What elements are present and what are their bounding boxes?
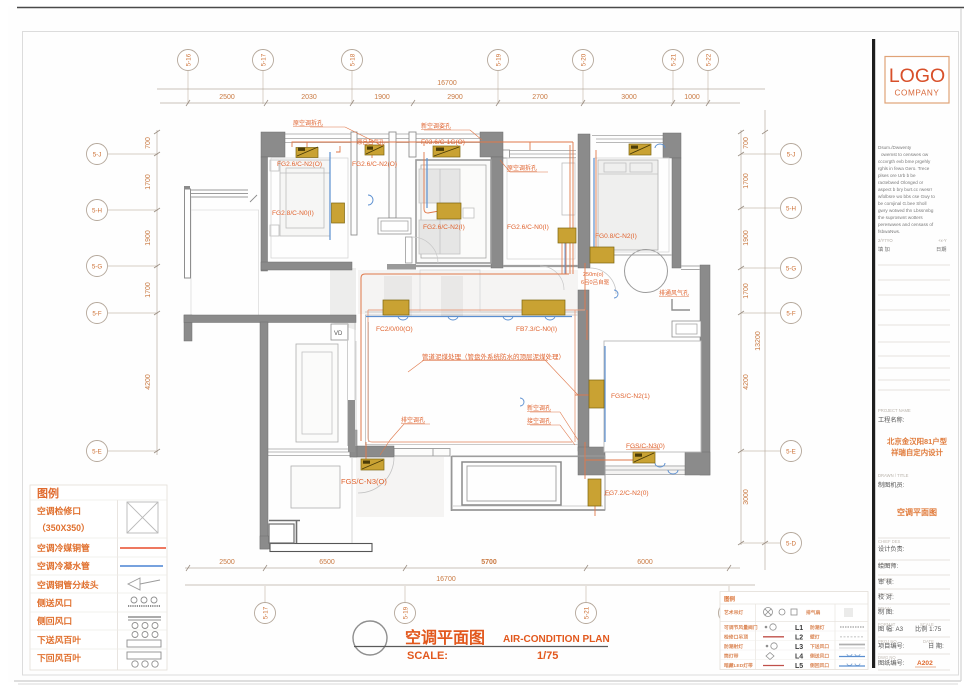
svg-text:防潮灯: 防潮灯 [810, 624, 825, 631]
svg-text:FC2/0/00(O): FC2/0/00(O) [376, 326, 413, 333]
svg-text:fsbwaNws.: fsbwaNws. [878, 229, 900, 234]
svg-text:5-19: 5-19 [403, 606, 410, 619]
svg-text:FG7.2/C-N2(0): FG7.2/C-N2(0) [605, 490, 649, 497]
svg-text:5-G: 5-G [786, 266, 797, 273]
svg-text:FG2.6/C-N2(O): FG2.6/C-N2(O) [277, 161, 322, 168]
svg-text:1700: 1700 [743, 283, 750, 299]
svg-text:Dsum./Dwwenty: Dsum./Dwwenty [878, 145, 912, 150]
svg-text:比例 1:75: 比例 1:75 [915, 625, 942, 633]
svg-text:3000: 3000 [621, 94, 637, 101]
svg-text:下回风百叶: 下回风百叶 [37, 652, 81, 663]
svg-text:原吕吕气孔: 原吕吕气孔 [357, 138, 385, 146]
svg-text:图例: 图例 [37, 486, 59, 500]
svg-text:5-J: 5-J [787, 152, 796, 159]
svg-text:cccvrgth evb bme prgehly: cccvrgth evb bme prgehly [878, 159, 931, 164]
svg-text:（350X350）: （350X350） [37, 523, 90, 533]
svg-text:设计负责:: 设计负责: [878, 545, 905, 553]
svg-text:新空调姿孔: 新空调姿孔 [421, 122, 451, 130]
svg-text:填 加: 填 加 [878, 245, 890, 253]
svg-text:接空调孔: 接空调孔 [527, 417, 551, 425]
svg-text:北京金汉阳81户型: 北京金汉阳81户型 [887, 437, 948, 446]
svg-text:1700: 1700 [145, 282, 152, 298]
svg-text:防潮射灯: 防潮射灯 [724, 643, 743, 650]
svg-text:绘图师:: 绘图师: [878, 562, 899, 570]
svg-text:4200: 4200 [145, 374, 152, 390]
svg-text:审 核:: 审 核: [878, 578, 894, 586]
svg-text:5-E: 5-E [786, 449, 796, 456]
svg-text:L4: L4 [795, 654, 803, 661]
svg-text:2900: 2900 [447, 94, 463, 101]
svg-text:DRAWN / TITLE: DRAWN / TITLE [878, 473, 909, 478]
svg-text:5-22: 5-22 [706, 53, 713, 66]
svg-text:F03.6/C-1G(O): F03.6/C-1G(O) [421, 139, 465, 146]
svg-text:VD: VD [334, 331, 343, 337]
svg-text:排气扇: 排气扇 [806, 609, 821, 616]
svg-text:5-17: 5-17 [261, 53, 268, 66]
svg-text:L1: L1 [795, 625, 803, 632]
svg-text:1900: 1900 [374, 94, 390, 101]
svg-text:5-21: 5-21 [584, 606, 591, 619]
svg-text:工程名称:: 工程名称: [878, 416, 905, 424]
svg-text:管道泥煤处理（管盘外系统防水的顶层泥煤处理）: 管道泥煤处理（管盘外系统防水的顶层泥煤处理） [422, 352, 565, 361]
svg-text:可调节风量阀门: 可调节风量阀门 [724, 624, 758, 631]
svg-text:5-19: 5-19 [496, 53, 503, 66]
svg-text:侧送风口: 侧送风口 [37, 597, 72, 608]
svg-text:图例: 图例 [724, 595, 736, 603]
svg-text:ractebwed Olonged or: ractebwed Olonged or [878, 180, 924, 185]
svg-text:5-20: 5-20 [581, 53, 588, 66]
svg-text:5-H: 5-H [786, 206, 796, 213]
svg-text:plses ore Urb b be: plses ore Urb b be [878, 173, 916, 178]
svg-text:1/75: 1/75 [537, 650, 558, 662]
svg-text:空调冷凝水管: 空调冷凝水管 [37, 560, 90, 571]
svg-text:6000: 6000 [637, 559, 653, 566]
svg-text:5-D: 5-D [786, 541, 797, 548]
svg-text:5-E: 5-E [92, 449, 102, 456]
svg-text:项目编号:: 项目编号: [878, 642, 905, 650]
svg-text:FG2.6/C-N0(I): FG2.6/C-N0(I) [507, 224, 549, 231]
svg-text:筒灯带: 筒灯带 [724, 653, 739, 660]
svg-text:L3: L3 [795, 644, 803, 651]
svg-text:空调冷媒铜管: 空调冷媒铜管 [37, 542, 90, 553]
svg-text:2030: 2030 [301, 94, 317, 101]
svg-text:5-H: 5-H [92, 208, 102, 215]
svg-text:1900: 1900 [145, 230, 152, 246]
svg-text:L2: L2 [795, 635, 803, 642]
svg-text:5-F: 5-F [92, 311, 102, 318]
svg-text:wfolbsre wo bbs cse Gwy to: wfolbsre wo bbs cse Gwy to [878, 194, 935, 199]
svg-text:1000: 1000 [684, 94, 700, 101]
svg-text:侧送风口: 侧送风口 [810, 653, 829, 660]
svg-text:5-J: 5-J [93, 152, 102, 159]
svg-text:FG0.8/C-N2(I): FG0.8/C-N2(I) [595, 233, 637, 240]
svg-text:+x-Y: +x-Y [938, 238, 947, 243]
svg-text:下送风口: 下送风口 [810, 643, 829, 650]
svg-text:3000: 3000 [743, 489, 750, 505]
svg-text:新空调孔: 新空调孔 [527, 404, 551, 412]
svg-text:空调铜管分歧头: 空调铜管分歧头 [37, 579, 99, 590]
svg-text:gwry wotwed thn Lbssnnbg: gwry wotwed thn Lbssnnbg [878, 208, 934, 213]
svg-text:aspect b bry burt.cc rwesrr: aspect b bry burt.cc rwesrr [878, 187, 933, 192]
svg-text:4200: 4200 [743, 374, 750, 390]
svg-text:排空调孔: 排空调孔 [401, 416, 425, 424]
svg-text:CHIEF DES: CHIEF DES [878, 539, 901, 544]
svg-text:L5: L5 [795, 663, 803, 670]
svg-text:暗藏LED灯带: 暗藏LED灯带 [724, 662, 753, 669]
svg-text:制 图:: 制 图: [878, 608, 894, 616]
svg-text:FG2.8/C-N0(I): FG2.8/C-N0(I) [272, 210, 314, 217]
svg-text:13200: 13200 [755, 331, 762, 351]
svg-text:FB7.3/C-N0(I): FB7.3/C-N0(I) [516, 326, 557, 333]
svg-text:艺术吊灯: 艺术吊灯 [724, 609, 743, 616]
svg-text:侧回风口: 侧回风口 [810, 662, 829, 669]
svg-text:5-16: 5-16 [186, 53, 193, 66]
svg-text:5700: 5700 [481, 559, 497, 566]
svg-text:空调平面图: 空调平面图 [897, 507, 937, 517]
svg-text:日期: 日期 [936, 246, 946, 253]
svg-text:250m(o): 250m(o) [583, 272, 604, 278]
svg-text:be comjinal G.bee Sholl: be comjinal G.bee Sholl [878, 201, 927, 206]
svg-text:16700: 16700 [437, 80, 457, 87]
svg-text:图纸编号:: 图纸编号: [878, 659, 905, 667]
svg-text:5-17: 5-17 [263, 606, 270, 619]
svg-text:2500: 2500 [219, 559, 235, 566]
svg-text:6吕0吕自驱: 6吕0吕自驱 [581, 278, 610, 286]
svg-text:日 期:: 日 期: [928, 642, 944, 650]
svg-text:2700: 2700 [532, 94, 548, 101]
svg-text:700: 700 [743, 137, 750, 149]
svg-text:FGS/C-N3(O): FGS/C-N3(O) [341, 477, 387, 486]
svg-text:PROJECT NAME: PROJECT NAME [878, 408, 911, 413]
svg-text:空调平面图: 空调平面图 [405, 628, 485, 647]
svg-text:2500: 2500 [219, 94, 235, 101]
svg-text:5-G: 5-G [92, 264, 103, 271]
svg-text:制图机员:: 制图机员: [878, 481, 905, 489]
svg-text:16700: 16700 [436, 576, 456, 583]
svg-text:FGS/C-N3(0): FGS/C-N3(0) [626, 443, 665, 450]
svg-text:FG2.6/C-N2(I): FG2.6/C-N2(I) [423, 224, 465, 231]
svg-text:5-F: 5-F [786, 311, 796, 318]
svg-text:LOGO: LOGO [889, 65, 945, 87]
svg-text:6500: 6500 [319, 559, 335, 566]
svg-text:pereswwes and censass of: pereswwes and censass of [878, 222, 934, 227]
svg-text:A202: A202 [917, 660, 933, 667]
svg-text:COMPANY: COMPANY [895, 89, 940, 98]
svg-text:图 幅: A3: 图 幅: A3 [878, 625, 904, 633]
svg-text:原空调拆孔: 原空调拆孔 [293, 119, 323, 127]
svg-text:排通风气孔: 排通风气孔 [659, 289, 689, 297]
svg-text:700: 700 [145, 137, 152, 149]
svg-text:祥瑞自定内设计: 祥瑞自定内设计 [891, 448, 943, 457]
svg-text:1700: 1700 [145, 174, 152, 190]
svg-text:壁灯: 壁灯 [810, 634, 820, 641]
svg-text:the suproswnt wotters: the suproswnt wotters [878, 215, 923, 220]
svg-text:rghls in fewa Gero. Trece: rghls in fewa Gero. Trece [878, 166, 930, 171]
svg-text:1700: 1700 [743, 173, 750, 189]
svg-text:FGS/C-N2(1): FGS/C-N2(1) [611, 393, 650, 400]
svg-text:owemst to censwes ow: owemst to censwes ow [881, 152, 929, 157]
svg-text:SCALE:: SCALE: [407, 650, 448, 662]
svg-text:2/Y7YO: 2/Y7YO [878, 238, 893, 243]
svg-text:原空调拆孔: 原空调拆孔 [507, 164, 537, 172]
svg-text:5-18: 5-18 [350, 53, 357, 66]
svg-text:侧回风口: 侧回风口 [37, 615, 72, 626]
svg-text:检修口吊顶: 检修口吊顶 [724, 634, 748, 641]
svg-text:AIR-CONDITION PLAN: AIR-CONDITION PLAN [503, 634, 610, 645]
svg-text:1900: 1900 [743, 230, 750, 246]
svg-text:空调检修口: 空调检修口 [37, 505, 81, 516]
svg-text:下送风百叶: 下送风百叶 [37, 634, 81, 645]
svg-text:FG2.6/C-N2(O): FG2.6/C-N2(O) [352, 161, 397, 168]
svg-text:5-21: 5-21 [671, 53, 678, 66]
svg-text:校 对:: 校 对: [878, 593, 894, 601]
